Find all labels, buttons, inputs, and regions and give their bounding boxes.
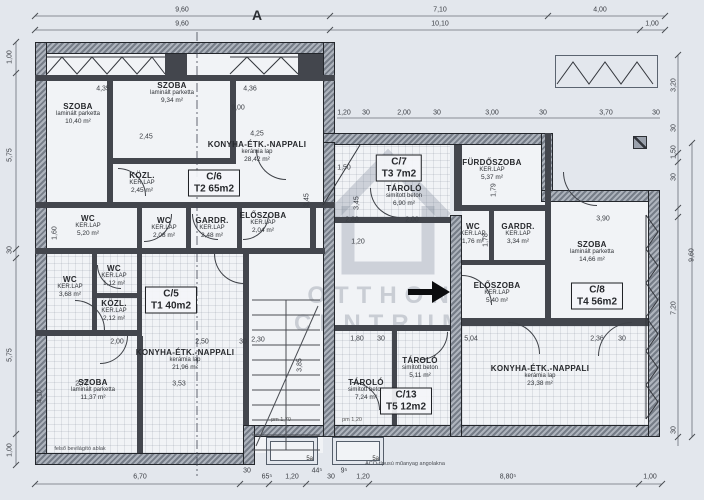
dimension-label: 3,90: [596, 216, 610, 223]
room-name: SZOBA: [56, 102, 100, 111]
room-finish: kerámia lap: [208, 149, 306, 156]
dimension-label: 2,50: [195, 339, 209, 346]
room-label: SZOBA laminált parketta 14,66 m²: [570, 240, 614, 264]
wall: [243, 425, 255, 465]
dimension-label: 2,36: [590, 336, 604, 343]
dimension-label: 9,60: [175, 21, 189, 28]
room-label: WC KER.LAP 1,12 m²: [101, 264, 126, 288]
dimension-label: 5,75: [7, 148, 14, 162]
room-area: 28,42 m²: [208, 156, 306, 163]
dimension-label: 2,45: [139, 134, 153, 141]
unit-code: C/7: [382, 157, 416, 169]
room-area: 6,90 m²: [386, 200, 422, 207]
room-name: FÜRDŐSZOBA: [462, 158, 521, 167]
wall: [107, 81, 113, 208]
dimension-label: 2,80: [345, 217, 359, 224]
room-area: 5,37 m²: [462, 174, 521, 181]
dimension-label: 3,70: [599, 110, 613, 117]
room-finish: KER.LAP: [474, 290, 521, 297]
dimension-label: 4,10: [37, 389, 44, 403]
wall: [35, 202, 335, 208]
room-area: 14,66 m²: [570, 256, 614, 263]
dimension-label: 9,60: [689, 248, 696, 262]
room-finish: simított beton: [402, 365, 438, 372]
dimension-label: 9,00: [231, 105, 245, 112]
room-label: GARDR. KER.LAP 3,34 m²: [501, 222, 534, 246]
room-label: FÜRDŐSZOBA KER.LAP 5,37 m²: [462, 158, 521, 182]
wall: [545, 133, 551, 323]
dimension-label: 1,79: [491, 183, 498, 197]
wall: [165, 54, 187, 75]
dimension-label: 3,45: [354, 196, 361, 210]
room-finish: kerámia lap: [136, 357, 234, 364]
dimension-label: 3,20: [671, 78, 678, 92]
room-label: TÁROLÓ simított beton 7,24 m²: [348, 378, 384, 402]
room-area: 10,40 m²: [56, 118, 100, 125]
dimension-label: 1,80: [350, 336, 364, 343]
room-name: TÁROLÓ: [402, 356, 438, 365]
wall: [35, 75, 335, 81]
room-name: WC: [151, 216, 176, 225]
wall: [323, 42, 335, 145]
wall: [186, 208, 191, 248]
dimension-label: 9⁵: [341, 468, 348, 475]
room-name: WC: [460, 222, 485, 231]
dimension-label: 7,20: [671, 301, 678, 315]
dimension-label: 8,80⁵: [500, 474, 517, 481]
room-finish: KER.LAP: [75, 223, 100, 230]
dimension-label: 1,50: [337, 165, 351, 172]
dimension-label: 30: [239, 339, 247, 346]
room-area: 9,34 m²: [150, 97, 194, 104]
room-area: 2,12 m²: [101, 315, 127, 322]
room-label: SZOBA laminált parketta 11,37 m²: [71, 378, 115, 402]
room-finish: simított beton: [348, 387, 384, 394]
dimension-label: 30: [327, 474, 335, 481]
unit-code: C/13: [386, 390, 426, 402]
room-area: 3,68 m²: [57, 291, 82, 298]
room-name: SZOBA: [150, 81, 194, 90]
dimension-label: 2,00: [110, 339, 124, 346]
room-label: WC KER.LAP 3,68 m²: [57, 275, 82, 299]
room-area: 2,08 m²: [151, 232, 176, 239]
wall: [323, 133, 553, 145]
dimension-label: 1,00: [7, 50, 14, 64]
room-label: ELŐSZOBA KER.LAP 5,40 m²: [474, 281, 521, 305]
grid-axis-label: A: [252, 7, 262, 23]
dimension-label: 1,20: [351, 239, 365, 246]
room-name: ELŐSZOBA: [240, 211, 287, 220]
dimension-label: 30: [433, 110, 441, 117]
wall: [323, 142, 335, 437]
room-area: 2,48 m²: [195, 232, 228, 239]
dimension-label: 1,00: [7, 443, 14, 457]
dimension-label: 3,85: [297, 358, 304, 372]
room-name: KÖZL.: [129, 171, 155, 180]
wall: [35, 248, 325, 254]
room-label: WC KER.LAP 2,08 m²: [151, 216, 176, 240]
unit-size: T4 56m2: [577, 296, 617, 308]
room-label: GARDR. KER.LAP 2,48 m²: [195, 216, 228, 240]
room-finish: simított beton: [386, 193, 422, 200]
wall: [541, 190, 660, 202]
room-finish: KER.LAP: [101, 308, 127, 315]
room-name: KONYHA-ÉTK.-NAPPALI: [136, 348, 234, 357]
dimension-label: 65⁵: [262, 474, 273, 481]
room-area: 5,40 m²: [474, 297, 521, 304]
dimension-label: 1,20: [285, 474, 299, 481]
room-finish: KER.LAP: [151, 225, 176, 232]
room-area: 7,24 m²: [348, 394, 384, 401]
room-finish: KER.LAP: [129, 180, 155, 187]
room-finish: laminált parketta: [150, 90, 194, 97]
wall: [298, 54, 323, 75]
dimension-label: 1,20: [356, 474, 370, 481]
dimension-label: 44⁵: [312, 468, 323, 475]
unit-code: C/8: [577, 285, 617, 297]
room-label: KÖZL. KER.LAP 2,45 m²: [129, 171, 155, 195]
room-name: KONYHA-ÉTK.-NAPPALI: [208, 140, 306, 149]
unit-tag: C/6 T2 65m2: [188, 170, 240, 197]
room-finish: KER.LAP: [462, 167, 521, 174]
dimension-label: 2,30: [251, 337, 265, 344]
dimension-label: 4,35: [96, 86, 110, 93]
unit-size: T3 7m2: [382, 168, 416, 180]
room-area: 23,38 m²: [491, 380, 589, 387]
room-name: ELŐSZOBA: [474, 281, 521, 290]
dimension-label: 4,36: [243, 86, 257, 93]
room-area: 21,96 m²: [136, 364, 234, 371]
dimension-label: 1,50: [671, 145, 678, 159]
dimension-label: 4,25: [250, 131, 264, 138]
wall: [454, 145, 462, 211]
room-label: ELŐSZOBA KER.LAP 2,04 m²: [240, 211, 287, 235]
dimension-label: 1,60: [52, 226, 59, 240]
wall: [310, 208, 316, 248]
room-name: GARDR.: [501, 222, 534, 231]
dimension-label: 30: [539, 110, 547, 117]
room-name: SZOBA: [570, 240, 614, 249]
light-well-label: 5a: [306, 456, 313, 462]
dimension-label: 5,04: [464, 336, 478, 343]
wall: [462, 205, 545, 211]
dimension-label: 10,10: [431, 21, 449, 28]
room-label: TÁROLÓ simított beton 5,11 m²: [402, 356, 438, 380]
room-name: WC: [57, 275, 82, 284]
dimension-label: 5,75: [7, 348, 14, 362]
room-finish: laminált parketta: [570, 249, 614, 256]
room-area: 5,20 m²: [75, 230, 100, 237]
room-label: WC KER.LAP 5,20 m²: [75, 214, 100, 238]
room-name: KONYHA-ÉTK.-NAPPALI: [491, 364, 589, 373]
dimension-label: 30: [243, 468, 251, 475]
room-finish: KER.LAP: [240, 220, 287, 227]
wall: [97, 293, 137, 298]
pillar: [633, 136, 647, 149]
dimension-label: 4,00: [593, 7, 607, 14]
room-area: 3,34 m²: [501, 238, 534, 245]
terrace-outline: [555, 55, 658, 88]
wall: [35, 42, 335, 54]
room-label: KONYHA-ÉTK.-NAPPALI kerámia lap 28,42 m²: [208, 140, 306, 164]
dimension-label: 30: [618, 336, 626, 343]
dimension-label: pm 1,70: [271, 417, 291, 423]
room-finish: KER.LAP: [57, 284, 82, 291]
room-finish: KER.LAP: [501, 231, 534, 238]
dimension-label: 30: [671, 426, 678, 434]
unit-size: T5 12m2: [386, 401, 426, 413]
wall: [450, 215, 462, 437]
unit-tag: C/13 T5 12m2: [380, 388, 432, 415]
room-name: TÁROLÓ: [386, 184, 422, 193]
unit-tag: C/8 T4 56m2: [571, 283, 623, 310]
unit-size: T2 65m2: [194, 183, 234, 195]
wall: [137, 208, 142, 248]
room-area: 11,37 m²: [71, 394, 115, 401]
room-label: KÖZL. KER.LAP 2,12 m²: [101, 299, 127, 323]
dimension-label: 2,00: [397, 110, 411, 117]
wall: [137, 254, 142, 333]
room-finish: KER.LAP: [101, 273, 126, 280]
unit-size: T1 40m2: [151, 300, 191, 312]
wall: [648, 190, 660, 437]
room-area: 5,11 m²: [402, 372, 438, 379]
room-label: TÁROLÓ simított beton 6,90 m²: [386, 184, 422, 208]
room-name: TÁROLÓ: [348, 378, 384, 387]
room-area: 1,12 m²: [101, 280, 126, 287]
dimension-label: 30: [362, 110, 370, 117]
room-label: SZOBA laminált parketta 10,40 m²: [56, 102, 100, 126]
dimension-label: 30: [7, 246, 14, 254]
room-finish: KER.LAP: [195, 225, 228, 232]
dimension-label: 7,10: [433, 7, 447, 14]
wall: [462, 260, 545, 265]
room-name: GARDR.: [195, 216, 228, 225]
dimension-label: pm 1,20: [342, 417, 362, 423]
room-label: KONYHA-ÉTK.-NAPPALI kerámia lap 23,38 m²: [491, 364, 589, 388]
dimension-label: 9,60: [175, 7, 189, 14]
room-finish: kerámia lap: [491, 373, 589, 380]
unit-tag: C/5 T1 40m2: [145, 287, 197, 314]
floor-plan-sheet: OTTHON CENTRUM: [0, 0, 704, 500]
dimension-label: 30: [671, 173, 678, 181]
wall: [35, 453, 255, 465]
room-area: 2,04 m²: [240, 227, 287, 234]
room-finish: KER.LAP: [460, 231, 485, 238]
room-label: WC KER.LAP 1,76 m²: [460, 222, 485, 246]
dimension-label: 2,00: [405, 217, 419, 224]
dimension-label: 3,53: [172, 381, 186, 388]
unit-code: C/6: [194, 172, 234, 184]
wall: [489, 211, 494, 260]
dimension-label: 30: [652, 110, 660, 117]
plan-note: ACO-típusú műanyag angolakna: [365, 461, 445, 467]
unit-code: C/5: [151, 289, 191, 301]
room-label: SZOBA laminált parketta 9,34 m²: [150, 81, 194, 105]
room-finish: laminált parketta: [56, 111, 100, 118]
room-area: 2,45 m²: [129, 187, 155, 194]
dimension-label: 1,00: [643, 474, 657, 481]
light-well: 5a: [266, 437, 318, 465]
dimension-label: 3,45: [304, 193, 311, 207]
room-label: KONYHA-ÉTK.-NAPPALI kerámia lap 21,96 m²: [136, 348, 234, 372]
plan-note: felső bevilágító ablak: [54, 446, 105, 452]
dimension-label: 3,00: [485, 110, 499, 117]
dimension-label: 1,20: [337, 110, 351, 117]
dimension-label: 30: [671, 124, 678, 132]
room-finish: laminált parketta: [71, 387, 115, 394]
dimension-label: 1,00: [645, 21, 659, 28]
room-name: WC: [101, 264, 126, 273]
room-name: KÖZL.: [101, 299, 127, 308]
room-name: WC: [75, 214, 100, 223]
room-name: SZOBA: [71, 378, 115, 387]
dimension-label: 30: [377, 336, 385, 343]
room-area: 1,76 m²: [460, 238, 485, 245]
unit-tag: C/7 T3 7m2: [376, 155, 422, 182]
dimension-label: 6,70: [133, 474, 147, 481]
